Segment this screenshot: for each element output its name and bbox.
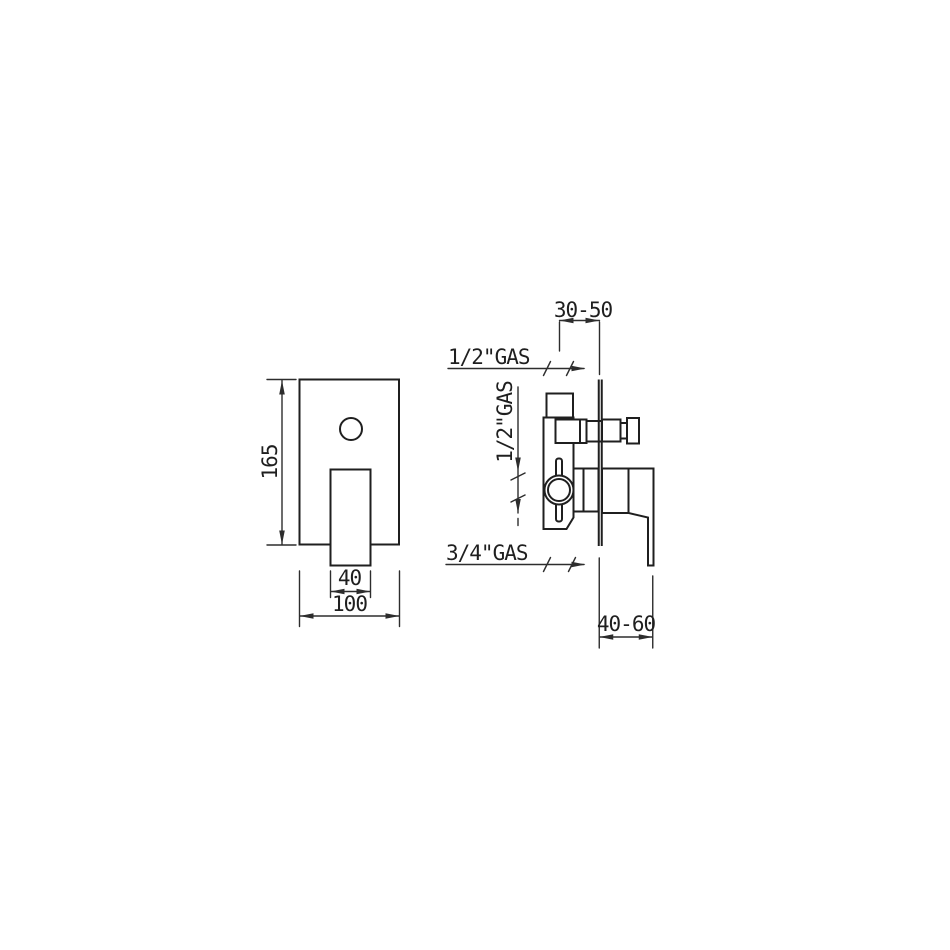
pipe-segment xyxy=(556,420,581,444)
dim-handle-width-40: 40 xyxy=(338,566,362,590)
label-half-inch-gas-side: 1/2"GAS xyxy=(493,381,517,463)
cartridge-trim xyxy=(602,469,629,514)
shower-outlet-pipe xyxy=(556,418,640,444)
dim-depth-30-50: 30-50 xyxy=(554,298,613,322)
pipe-end-cap xyxy=(627,418,639,444)
drawing-sheet: 165 40 100 xyxy=(0,0,950,950)
cartridge xyxy=(574,469,599,512)
dim-plate-width-100: 100 xyxy=(332,592,367,616)
label-three-quarter-gas: 3/4"GAS xyxy=(446,541,528,565)
sheet-background xyxy=(0,0,950,950)
top-outlet-port xyxy=(547,394,574,418)
dim-height-165: 165 xyxy=(258,445,282,480)
mixer-handle-front xyxy=(331,470,371,566)
pipe-segment xyxy=(602,420,621,442)
dim-depth-40-60: 40-60 xyxy=(597,612,656,636)
technical-drawing: 165 40 100 xyxy=(0,0,950,950)
label-half-inch-gas-top: 1/2"GAS xyxy=(448,345,530,369)
